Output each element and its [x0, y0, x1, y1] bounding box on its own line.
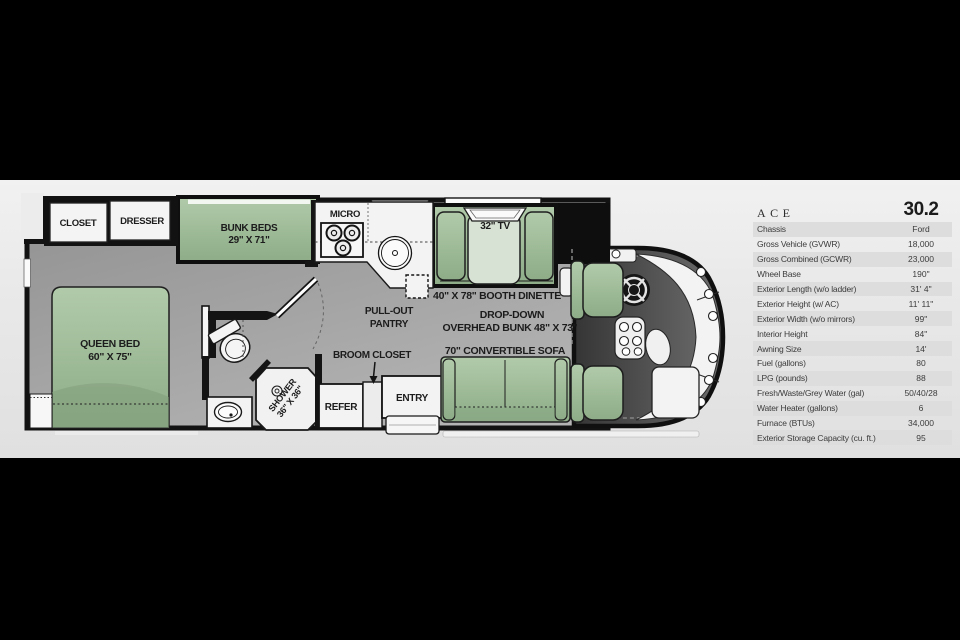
spec-row: Wheel Base190": [753, 267, 952, 282]
letterbox-top: [0, 0, 960, 180]
stove: [321, 223, 363, 257]
sofa-label: 70" CONVERTIBLE SOFA: [445, 345, 566, 357]
spec-label: Awning Size: [753, 344, 890, 354]
dinette-bench-right: [525, 212, 553, 280]
spec-row: Fuel (gallons)80: [753, 356, 952, 371]
spec-label: Gross Vehicle (GVWR): [753, 239, 890, 249]
entry-label: ENTRY: [396, 393, 429, 404]
driver-seat: [571, 261, 623, 319]
spec-row: Fresh/Waste/Grey Water (gal)50/40/28: [753, 386, 952, 401]
queen-label-2: 60" X 75": [88, 351, 132, 363]
model-number: 30.2: [890, 199, 952, 221]
spec-label: Gross Combined (GCWR): [753, 254, 890, 264]
spec-value: 88: [890, 373, 952, 383]
spec-value: 50/40/28: [890, 388, 952, 398]
booth-dinette: [433, 198, 556, 286]
spec-row: Exterior Height (w/ AC)11' 11": [753, 296, 952, 311]
bunk-label-2: 29" X 71": [228, 235, 270, 246]
spec-row: Exterior Width (w/o mirrors)99": [753, 311, 952, 326]
spec-row: Furnace (BTUs)34,000: [753, 416, 952, 431]
spec-value: 14': [890, 344, 952, 354]
dresser-label: DRESSER: [120, 216, 164, 227]
content-band: CLOSET DRESSER BUNK BEDS 29" X 71" MICRO…: [0, 180, 960, 458]
kitchen-sink: [379, 237, 412, 270]
convertible-sofa: [441, 357, 570, 422]
passenger-seat: [571, 364, 623, 422]
nightstand: [30, 394, 52, 428]
broom-closet: [363, 382, 382, 428]
spec-value: 34,000: [890, 418, 952, 428]
spec-label: Exterior Height (w/ AC): [753, 299, 890, 309]
spec-label: Furnace (BTUs): [753, 418, 890, 428]
bunk-label-1: BUNK BEDS: [221, 223, 278, 234]
pantry-label-2: PANTRY: [370, 319, 409, 330]
spec-value: 31' 4": [890, 284, 952, 294]
specs-table: ACE 30.2 ChassisFord Gross Vehicle (GVWR…: [753, 201, 952, 445]
spec-value: 80: [890, 358, 952, 368]
engine-cover: [652, 367, 699, 418]
pullout-pantry: [406, 275, 428, 298]
body-skirt: [443, 431, 699, 437]
spec-label: Water Heater (gallons): [753, 403, 890, 413]
spec-value: Ford: [890, 224, 952, 234]
micro-label: MICRO: [330, 209, 360, 220]
spec-row: Gross Combined (GCWR)23,000: [753, 252, 952, 267]
spec-row: Gross Vehicle (GVWR)18,000: [753, 237, 952, 252]
body-skirt-rear: [55, 431, 198, 435]
spec-label: Exterior Storage Capacity (cu. ft.): [753, 433, 890, 443]
spec-label: Fuel (gallons): [753, 358, 890, 368]
specs-rows: ChassisFord Gross Vehicle (GVWR)18,000 G…: [753, 222, 952, 445]
pantry-label-1: PULL-OUT: [365, 306, 413, 317]
spec-label: Interior Height: [753, 329, 890, 339]
letterbox-bottom: [0, 458, 960, 640]
queen-label-1: QUEEN BED: [80, 338, 140, 350]
front-tv-cabinet: [556, 203, 610, 264]
spec-label: Chassis: [753, 224, 890, 234]
dinette-label: 40" X 78" BOOTH DINETTE: [433, 290, 561, 302]
tv-label: 32" TV: [480, 221, 510, 232]
spec-label: Fresh/Waste/Grey Water (gal): [753, 388, 890, 398]
spec-value: 6: [890, 403, 952, 413]
spec-value: 18,000: [890, 239, 952, 249]
dinette-bench-left: [437, 212, 465, 280]
spec-label: LPG (pounds): [753, 373, 890, 383]
dropdown-label-2: OVERHEAD BUNK 48" X 73": [443, 322, 578, 334]
spec-label: Wheel Base: [753, 269, 890, 279]
spec-value: 99": [890, 314, 952, 324]
spec-label: Exterior Length (w/o ladder): [753, 284, 890, 294]
bath-sink: [207, 397, 252, 428]
brochure-page: { "specs": { "series": "ACE", "model": "…: [0, 0, 960, 640]
dropdown-label-1: DROP-DOWN: [480, 309, 544, 321]
spec-row: ChassisFord: [753, 222, 952, 237]
spec-row: Exterior Length (w/o ladder)31' 4": [753, 282, 952, 297]
spec-row: Water Heater (gallons)6: [753, 401, 952, 416]
bunk-window: [188, 200, 310, 205]
window-rear: [24, 259, 31, 287]
broom-label: BROOM CLOSET: [333, 350, 411, 361]
center-console: [615, 317, 645, 359]
spec-value: 95: [890, 433, 952, 443]
spec-value: 84": [890, 329, 952, 339]
pocket-door: [202, 306, 209, 358]
spec-row: Awning Size14': [753, 341, 952, 356]
model-series: ACE: [753, 206, 795, 221]
spec-value: 11' 11": [890, 299, 952, 309]
spec-label: Exterior Width (w/o mirrors): [753, 314, 890, 324]
refer-label: REFER: [325, 402, 358, 413]
spec-value: 190": [890, 269, 952, 279]
specs-header: ACE 30.2: [753, 201, 952, 221]
closet-label: CLOSET: [60, 218, 97, 229]
spec-row: Interior Height84": [753, 326, 952, 341]
spec-row: Exterior Storage Capacity (cu. ft.)95: [753, 430, 952, 445]
spec-value: 23,000: [890, 254, 952, 264]
spec-row: LPG (pounds)88: [753, 371, 952, 386]
rv-floorplan: CLOSET DRESSER BUNK BEDS 29" X 71" MICRO…: [0, 180, 750, 458]
